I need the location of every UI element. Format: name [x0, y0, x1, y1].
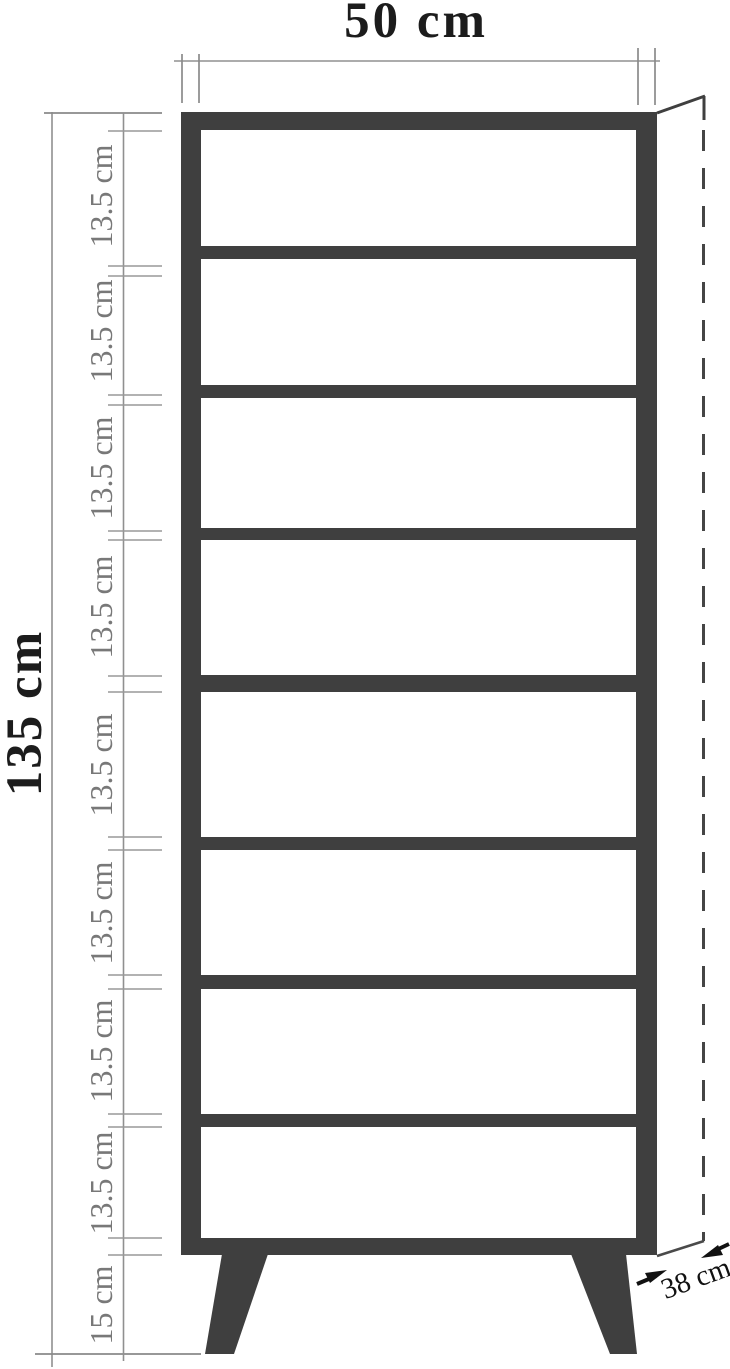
- svg-text:13.5 cm: 13.5 cm: [83, 713, 119, 816]
- svg-text:50 cm: 50 cm: [344, 0, 488, 49]
- svg-text:13.5 cm: 13.5 cm: [83, 555, 119, 658]
- svg-text:135 cm: 135 cm: [0, 630, 53, 796]
- svg-text:13.5 cm: 13.5 cm: [83, 1131, 119, 1234]
- svg-text:13.5 cm: 13.5 cm: [83, 416, 119, 519]
- svg-text:13.5 cm: 13.5 cm: [83, 861, 119, 964]
- svg-text:13.5 cm: 13.5 cm: [83, 999, 119, 1102]
- svg-text:13.5 cm: 13.5 cm: [83, 144, 119, 247]
- svg-text:13.5 cm: 13.5 cm: [83, 279, 119, 382]
- svg-text:15 cm: 15 cm: [83, 1265, 119, 1344]
